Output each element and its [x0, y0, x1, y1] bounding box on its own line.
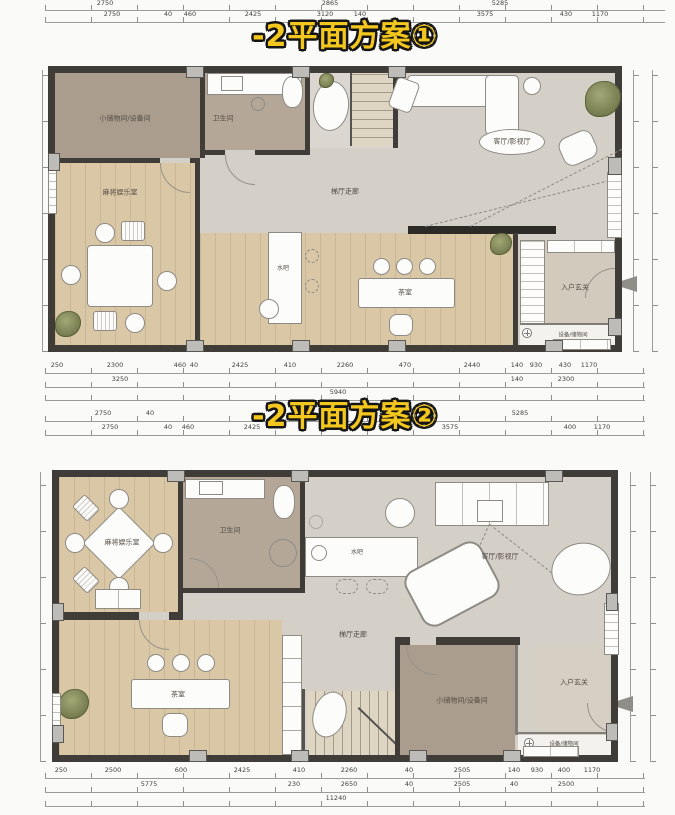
dim-value: 40 [405, 781, 413, 788]
column [388, 340, 406, 352]
chair [93, 311, 117, 331]
chair [109, 489, 129, 509]
plan1-title: -2平面方案① [252, 11, 438, 55]
dimension-line [45, 787, 645, 793]
bar-stool [305, 279, 319, 293]
column [291, 470, 309, 482]
dim-value: 460 [184, 11, 196, 18]
round-stool [385, 498, 415, 528]
tea-stool [172, 654, 190, 672]
window [48, 168, 57, 214]
wall [55, 158, 160, 163]
stair-railing [350, 73, 352, 146]
chair [157, 271, 177, 291]
toilet [282, 76, 303, 108]
room-label-foyer: 入户玄关 [561, 285, 589, 292]
room-label-utility: 设备/储物间 [558, 333, 587, 339]
dim-value: 930 [531, 767, 543, 774]
dim-value: 2300 [558, 376, 575, 383]
bookshelf [282, 635, 302, 755]
room-label-living: 客厅/影视厅 [493, 139, 530, 146]
dim-value: 2425 [234, 767, 251, 774]
room-label-bathroom: 卫生间 [213, 116, 234, 123]
round-basin [251, 97, 265, 111]
room-label-storage: 小储物间/设备间 [436, 698, 487, 705]
dim-value: 2500 [105, 767, 122, 774]
room-label-corridor: 梯厅走廊 [331, 189, 359, 196]
dim-value: 2505 [454, 781, 471, 788]
dim-value: 40 [510, 781, 518, 788]
wall [436, 637, 520, 645]
wall [183, 588, 305, 593]
shower-basin [269, 539, 297, 567]
column [608, 157, 622, 175]
plan2-floorplan: 麻将娱乐室 卫生间 水吧 客厅/影视厅 梯厅走廊 茶室 小储物间/设备间 入户玄… [52, 470, 618, 762]
dim-value: 1170 [592, 11, 609, 18]
wall [200, 73, 205, 158]
wall [255, 150, 310, 155]
bathroom-counter [185, 479, 265, 499]
room-label-utility: 设备/储物间 [549, 742, 578, 748]
dim-value: 1170 [584, 767, 601, 774]
dim-value: 1170 [581, 362, 598, 369]
tea-bar-floor [200, 233, 513, 345]
room-label-corridor: 梯厅走廊 [339, 632, 367, 639]
room-label-mahjong: 麻将娱乐室 [103, 190, 138, 197]
dim-value: 460 [182, 424, 194, 431]
wall [518, 732, 611, 734]
column [292, 66, 310, 78]
dim-value: 40 [146, 410, 154, 417]
room-label-storage: 小储物间/设备间 [99, 116, 150, 123]
plan2-title: -2平面方案② [252, 391, 438, 435]
dim-value: 430 [560, 11, 572, 18]
wall [195, 163, 200, 345]
dim-value: 430 [559, 362, 571, 369]
bar-sink [311, 545, 327, 561]
dimension-line [45, 773, 645, 779]
dim-value: 470 [399, 362, 411, 369]
sink-basin [199, 481, 223, 495]
toilet [273, 485, 295, 519]
dim-value: 3575 [477, 11, 494, 18]
wall [395, 637, 400, 755]
column [292, 340, 310, 352]
dim-value: 410 [284, 362, 296, 369]
dim-value: 250 [51, 362, 63, 369]
floorplan-image: 2750 2865 5285 2750 40 460 2425 3120 140… [0, 0, 675, 815]
dim-value: 11240 [326, 795, 347, 802]
dim-value: 2650 [341, 781, 358, 788]
column [167, 470, 185, 482]
tea-chair [389, 314, 413, 336]
tea-stool [197, 654, 215, 672]
dim-value: 2260 [337, 362, 354, 369]
tv-unit [477, 500, 503, 522]
room-label-tea: 茶室 [398, 290, 412, 297]
dim-value: 40 [164, 11, 172, 18]
dim-value: 2750 [104, 11, 121, 18]
column [606, 723, 618, 741]
dim-value: 140 [508, 767, 520, 774]
dimension-line [45, 801, 645, 807]
plan1-floorplan: 小储物间/设备间 卫生间 麻将娱乐室 客厅/影视厅 梯厅走廊 水吧 茶室 入户玄… [48, 66, 622, 352]
side-table [523, 77, 541, 95]
dim-value: 140 [511, 376, 523, 383]
column [52, 725, 64, 743]
column [608, 318, 622, 336]
column [606, 593, 618, 611]
chair [95, 223, 115, 243]
dim-value: 2425 [232, 362, 249, 369]
kettle [259, 299, 279, 319]
room-label-tea: 茶室 [171, 692, 185, 699]
dim-value: 250 [55, 767, 67, 774]
column [48, 153, 60, 171]
decor-sketch [309, 515, 323, 529]
chair [65, 533, 85, 553]
dim-value: 460 [174, 362, 186, 369]
tea-stool [396, 258, 413, 275]
floor-drain-icon [522, 328, 532, 338]
dim-value: 2750 [97, 0, 114, 6]
column [186, 340, 204, 352]
dim-value: 3575 [442, 424, 459, 431]
dimension-line [650, 472, 656, 762]
dim-value: 2505 [454, 767, 471, 774]
dim-value: 930 [530, 362, 542, 369]
sofa-chaise [485, 75, 519, 135]
stair-railing [302, 689, 305, 755]
wall [59, 612, 139, 620]
dim-value: 40 [164, 424, 172, 431]
wardrobe-shelves [520, 240, 545, 330]
dim-value: 410 [293, 767, 305, 774]
dim-value: 400 [558, 767, 570, 774]
room-label-living: 客厅/影视厅 [481, 554, 518, 561]
bar-stool [366, 579, 388, 594]
dim-value: 5285 [512, 410, 529, 417]
dim-value: 40 [190, 362, 198, 369]
dim-value: 5775 [141, 781, 158, 788]
wall [169, 612, 183, 620]
sink-basin [221, 76, 243, 91]
wall [513, 233, 518, 345]
dim-value: 2865 [322, 0, 339, 6]
dim-value: 3250 [112, 376, 129, 383]
staircase [352, 73, 393, 146]
column [545, 470, 563, 482]
column [388, 66, 406, 78]
dimension-line [633, 70, 639, 352]
column [545, 340, 563, 352]
dim-value: 40 [405, 767, 413, 774]
chair [61, 265, 81, 285]
room-label-water-bar: 水吧 [351, 550, 363, 556]
chair [125, 313, 145, 333]
foyer-closet [547, 240, 615, 253]
column [52, 603, 64, 621]
bar-stool [336, 579, 358, 594]
column [291, 750, 309, 762]
dim-value: 5285 [492, 0, 509, 6]
wall [400, 637, 410, 645]
column [409, 750, 427, 762]
tea-chair [162, 713, 188, 737]
column [186, 66, 204, 78]
room-label-water-bar: 水吧 [277, 266, 289, 272]
tea-stool [419, 258, 436, 275]
plant [585, 81, 621, 117]
wall [515, 645, 518, 735]
dim-value: 2300 [107, 362, 124, 369]
person-figure [559, 483, 570, 494]
dim-value: 2750 [95, 410, 112, 417]
dimension-line [40, 472, 46, 762]
room-label-foyer: 入户玄关 [560, 680, 588, 687]
dimension-line [45, 368, 645, 374]
dim-value: 230 [288, 781, 300, 788]
chair [121, 221, 145, 241]
dim-value: 2260 [341, 767, 358, 774]
wall [305, 73, 310, 150]
chair [153, 533, 173, 553]
dim-value: 2500 [558, 781, 575, 788]
dim-value: 1170 [594, 424, 611, 431]
mahjong-table [87, 245, 153, 307]
dim-value: 600 [175, 767, 187, 774]
window [607, 172, 622, 238]
dim-value: 140 [511, 362, 523, 369]
cabinet [95, 589, 141, 609]
wall [520, 323, 615, 325]
dim-value: 2750 [102, 424, 119, 431]
wall [178, 477, 183, 620]
room-label-mahjong: 麻将娱乐室 [105, 540, 140, 547]
dim-value: 400 [564, 424, 576, 431]
entry-door-marker-icon [618, 696, 633, 712]
bar-stool [305, 249, 319, 263]
dimension-line [630, 472, 636, 762]
tea-stool [373, 258, 390, 275]
column [189, 750, 207, 762]
room-label-bathroom: 卫生间 [220, 528, 241, 535]
entry-door-marker-icon [622, 276, 637, 292]
media-wall [408, 226, 556, 234]
dimension-line [652, 70, 658, 352]
wall [205, 150, 225, 155]
column [503, 750, 521, 762]
dim-value: 2440 [464, 362, 481, 369]
tea-stool [147, 654, 165, 672]
